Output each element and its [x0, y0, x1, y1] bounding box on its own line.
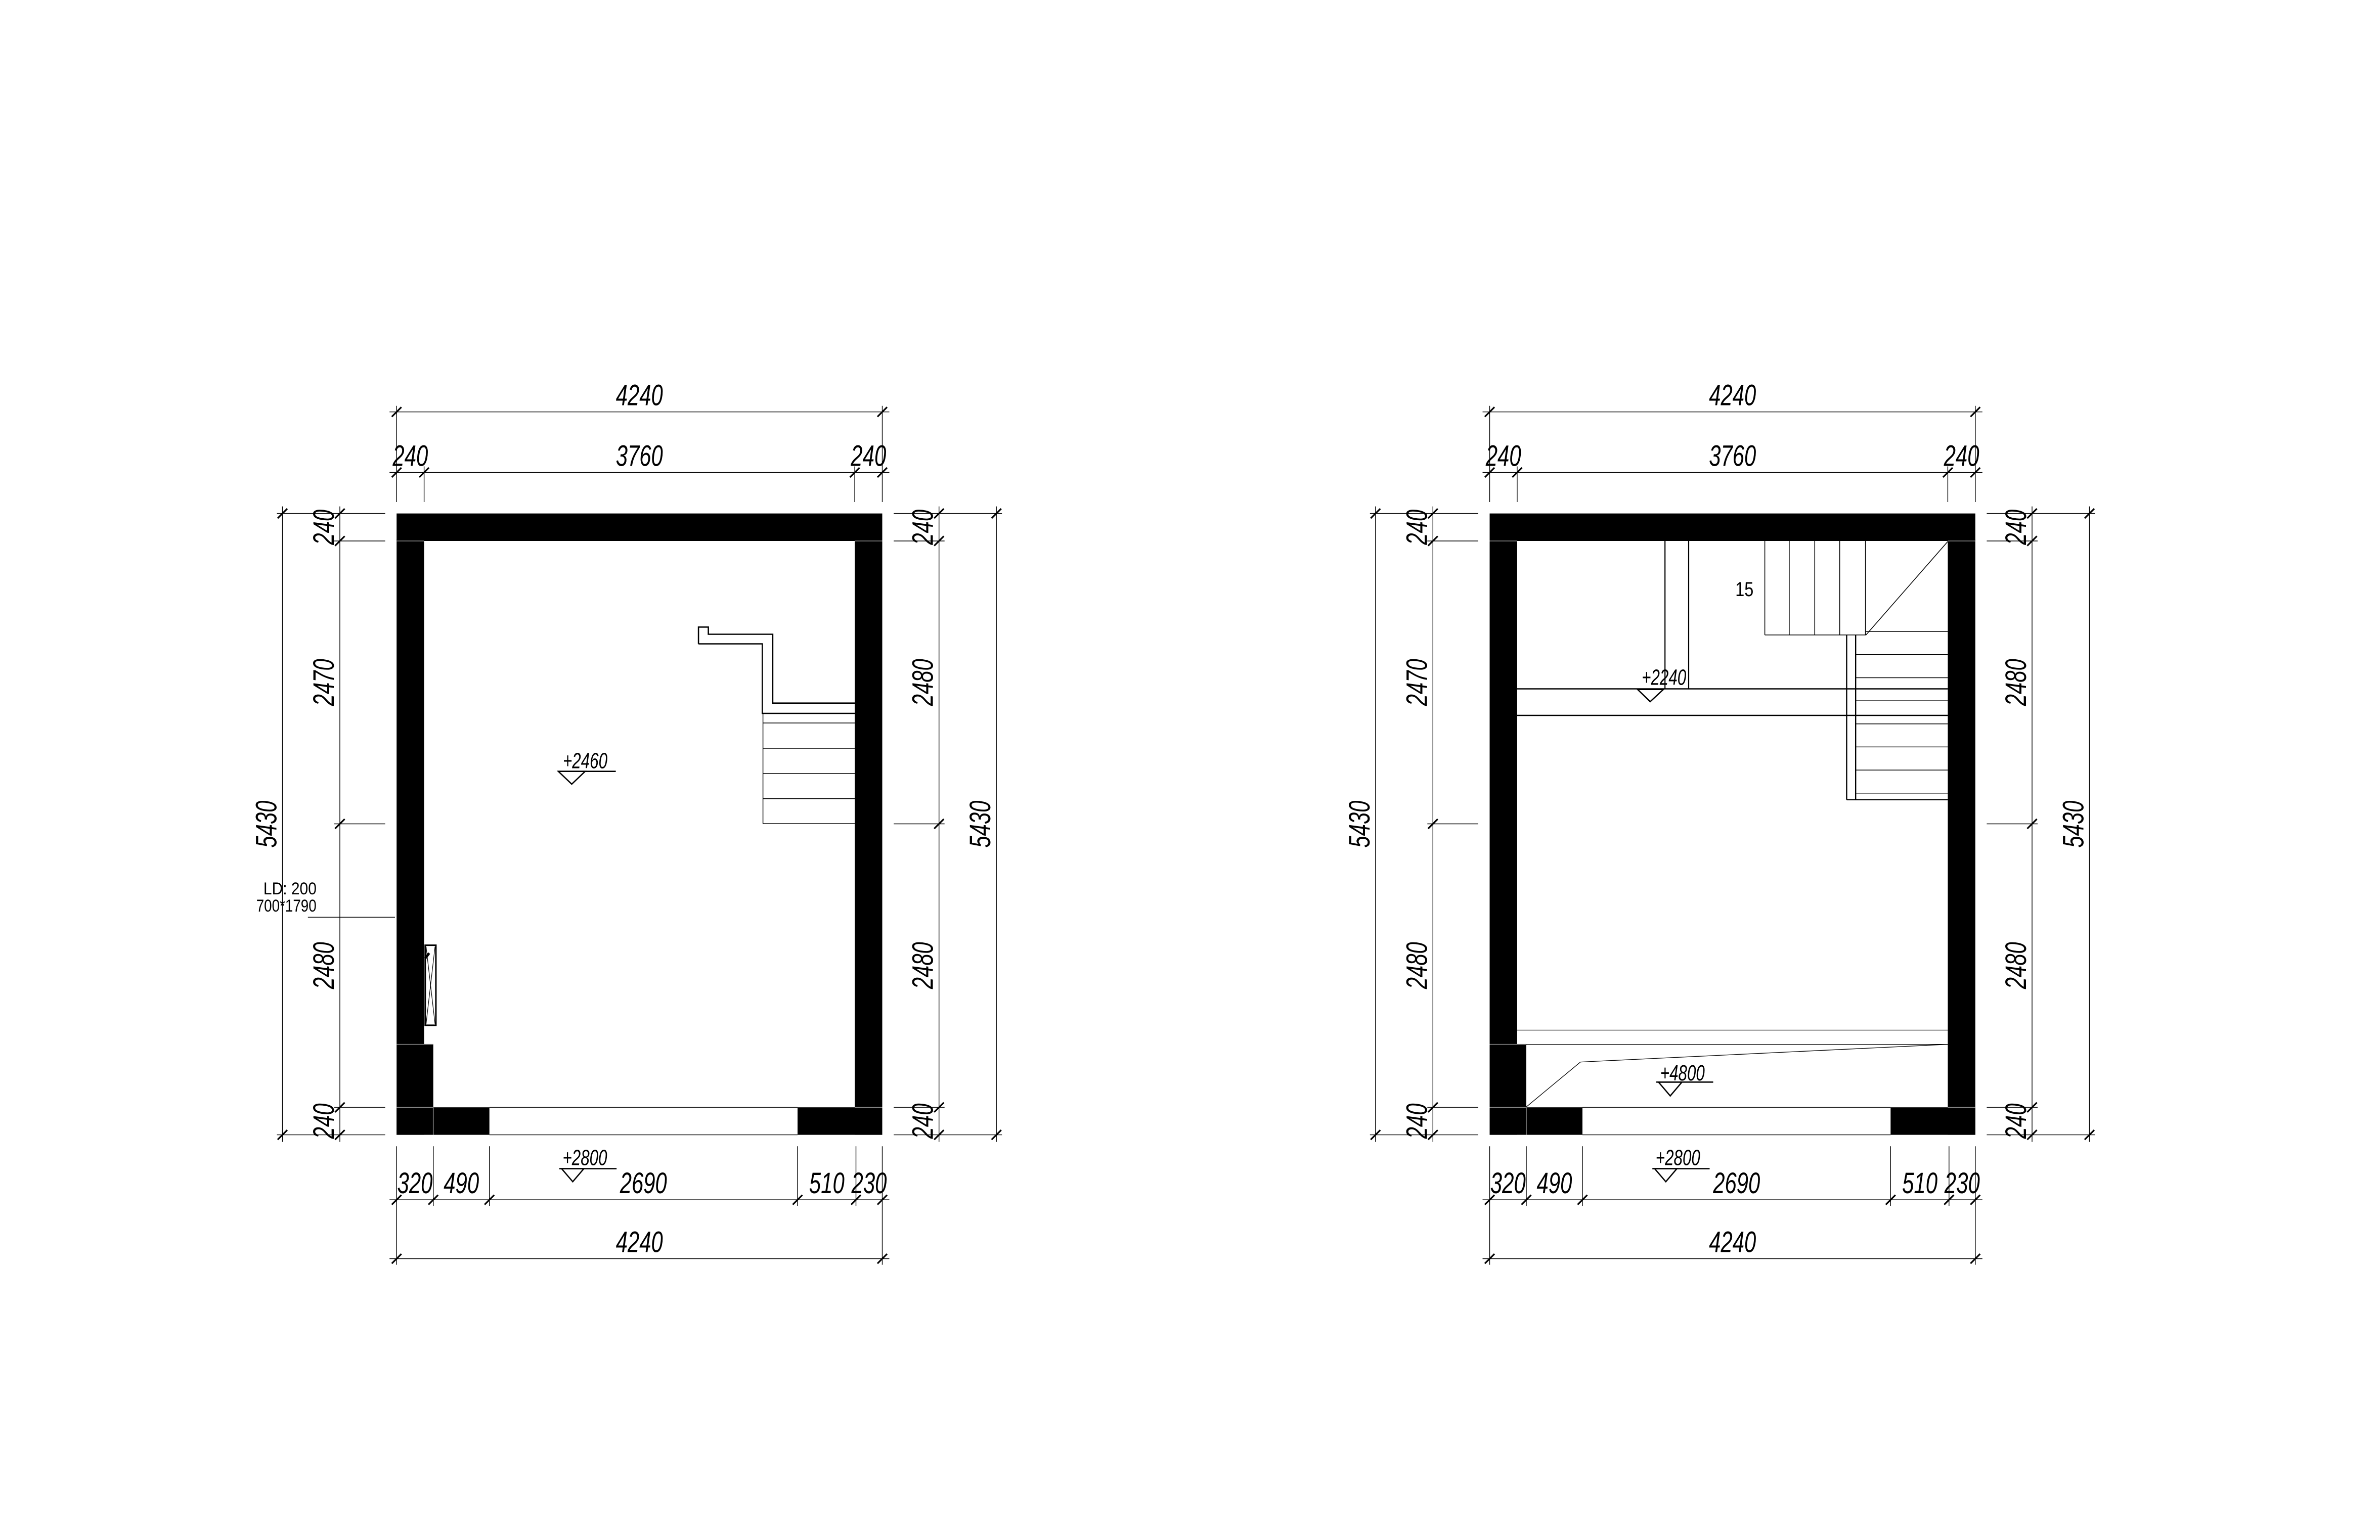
svg-text:320: 320	[398, 1167, 433, 1200]
svg-text:240: 240	[2000, 510, 2033, 546]
svg-text:510: 510	[809, 1167, 845, 1200]
svg-text:240: 240	[2000, 1103, 2033, 1139]
svg-text:+2460: +2460	[563, 748, 607, 773]
svg-text:240: 240	[1400, 510, 1433, 546]
svg-text:240: 240	[907, 1103, 940, 1139]
svg-text:3760: 3760	[1709, 440, 1756, 473]
svg-text:2690: 2690	[1712, 1167, 1760, 1200]
svg-text:2480: 2480	[2000, 942, 2033, 989]
svg-text:5430: 5430	[2057, 801, 2090, 848]
svg-text:4240: 4240	[616, 1226, 663, 1259]
svg-text:2480: 2480	[307, 942, 340, 989]
svg-text:2470: 2470	[1400, 659, 1433, 706]
svg-text:+2800: +2800	[1656, 1146, 1700, 1170]
svg-text:230: 230	[1944, 1167, 1980, 1200]
svg-text:2480: 2480	[907, 659, 940, 706]
svg-text:4240: 4240	[1709, 1226, 1756, 1259]
svg-text:15: 15	[1735, 578, 1753, 601]
svg-text:320: 320	[1490, 1167, 1526, 1200]
svg-text:+2240: +2240	[1642, 665, 1686, 690]
svg-text:240: 240	[1485, 440, 1521, 473]
svg-text:2470: 2470	[307, 659, 340, 706]
svg-text:2690: 2690	[620, 1167, 667, 1200]
svg-text:2480: 2480	[907, 942, 940, 989]
svg-text:LD: 200: LD: 200	[263, 879, 317, 898]
svg-text:240: 240	[392, 440, 428, 473]
svg-text:490: 490	[444, 1167, 479, 1200]
svg-text:240: 240	[307, 510, 340, 546]
svg-text:700*1790: 700*1790	[256, 896, 317, 916]
svg-text:5430: 5430	[1343, 801, 1376, 848]
svg-text:3760: 3760	[616, 440, 663, 473]
svg-text:2480: 2480	[2000, 659, 2033, 706]
svg-text:490: 490	[1537, 1167, 1572, 1200]
svg-text:240: 240	[1944, 440, 1979, 473]
svg-text:240: 240	[907, 510, 940, 546]
svg-text:+2800: +2800	[563, 1146, 607, 1170]
svg-text:240: 240	[851, 440, 887, 473]
svg-text:4240: 4240	[1709, 379, 1756, 412]
svg-text:5430: 5430	[250, 801, 283, 848]
svg-text:510: 510	[1902, 1167, 1937, 1200]
svg-text:4240: 4240	[616, 379, 663, 412]
svg-text:2480: 2480	[1400, 942, 1433, 989]
svg-text:240: 240	[1400, 1103, 1433, 1139]
svg-text:230: 230	[851, 1167, 887, 1200]
svg-text:5430: 5430	[964, 801, 997, 848]
svg-text:240: 240	[307, 1103, 340, 1139]
